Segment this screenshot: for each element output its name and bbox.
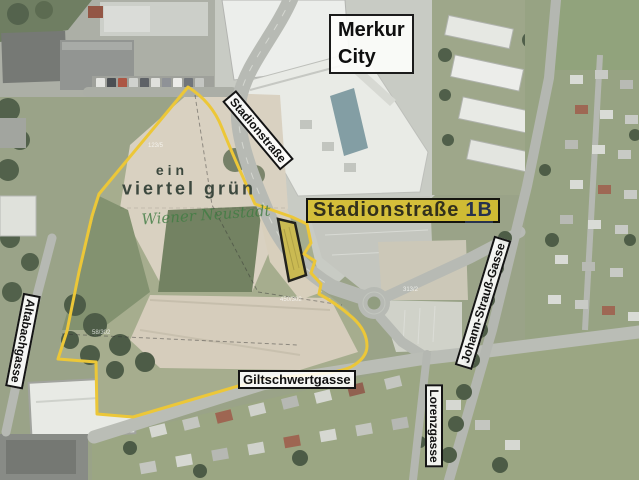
project-logo-line2: viertel grün xyxy=(122,179,256,200)
parcel-number: 313/2 xyxy=(403,287,418,293)
parcel-number: 123/5 xyxy=(148,143,163,149)
site-address-label: Stadionstraße1B xyxy=(306,198,500,223)
aerial-photo xyxy=(0,0,639,480)
aerial-map: 123/5 450/302 58/302 313/2 ein viertel g… xyxy=(0,0,639,480)
parcel-number: 58/302 xyxy=(92,330,110,336)
street-label-giltschwertgasse: Giltschwertgasse xyxy=(238,370,356,389)
project-logo-line1: ein xyxy=(156,162,188,178)
site-address-number: 1B xyxy=(465,199,493,223)
merkur-city-line1: Merkur xyxy=(338,17,405,44)
merkur-city-line2: City xyxy=(338,44,405,71)
site-address-street: Stadionstraße xyxy=(313,199,459,221)
merkur-city-label: Merkur City xyxy=(329,14,414,74)
street-label-lorenzgasse: Lorenzgasse xyxy=(425,384,443,467)
haze-overlay xyxy=(0,0,639,480)
parcel-number: 450/302 xyxy=(280,297,302,303)
